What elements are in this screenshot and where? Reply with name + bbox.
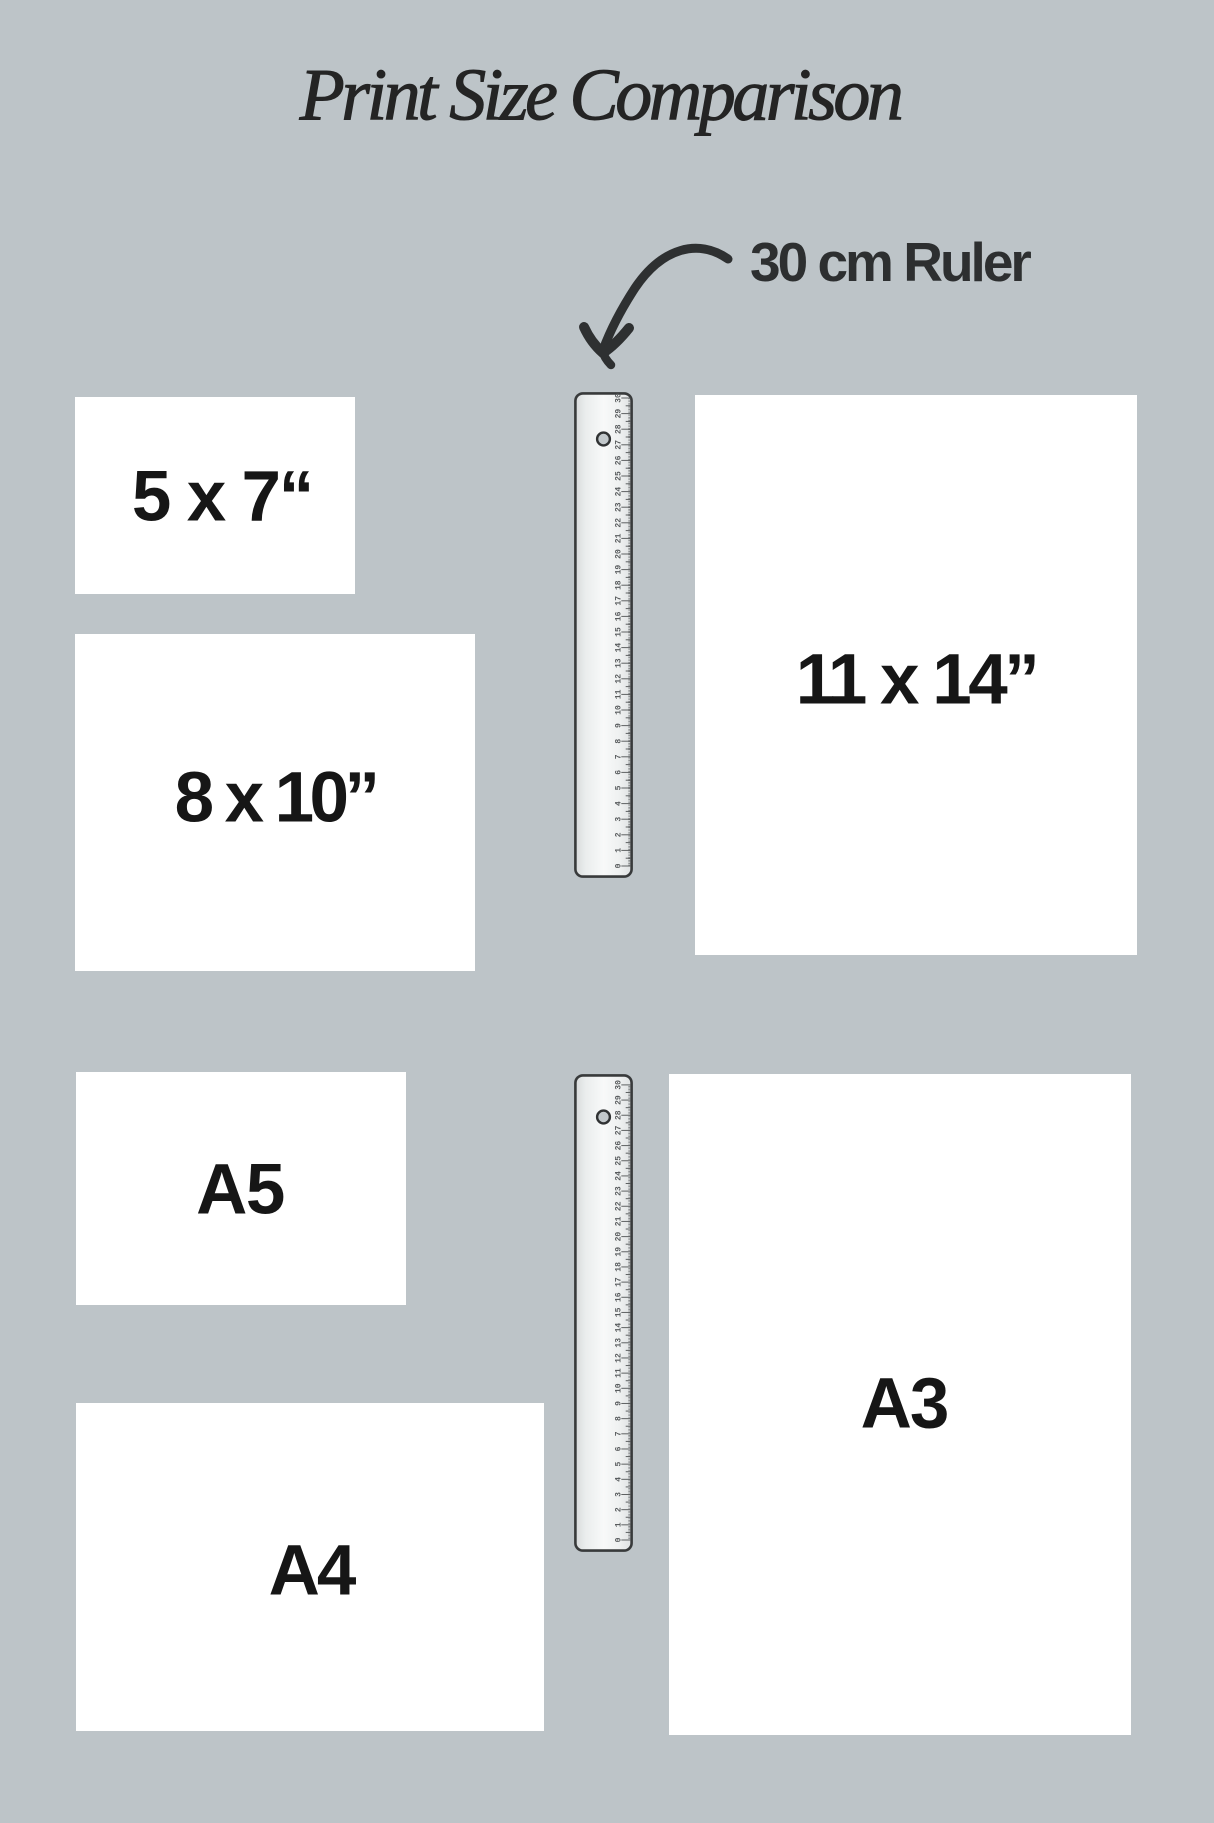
svg-text:20: 20 — [615, 549, 624, 559]
svg-text:10: 10 — [615, 1383, 624, 1393]
svg-text:17: 17 — [615, 1277, 624, 1287]
svg-text:11: 11 — [615, 689, 624, 699]
svg-text:21: 21 — [615, 1216, 624, 1226]
svg-text:27: 27 — [615, 440, 624, 450]
svg-text:25: 25 — [615, 471, 624, 481]
svg-text:0: 0 — [615, 1537, 624, 1542]
svg-text:30: 30 — [615, 1080, 624, 1090]
svg-text:23: 23 — [615, 502, 624, 512]
svg-text:8: 8 — [615, 1416, 624, 1421]
svg-text:11: 11 — [615, 1368, 624, 1378]
svg-text:30: 30 — [615, 393, 624, 403]
svg-text:26: 26 — [615, 1141, 624, 1151]
svg-text:25: 25 — [615, 1156, 624, 1166]
svg-text:24: 24 — [615, 1171, 624, 1181]
svg-text:28: 28 — [615, 1110, 624, 1120]
svg-text:1: 1 — [615, 1522, 624, 1527]
svg-text:21: 21 — [615, 533, 624, 543]
svg-text:12: 12 — [615, 1353, 624, 1363]
svg-text:18: 18 — [615, 1262, 624, 1272]
svg-text:15: 15 — [615, 627, 624, 637]
svg-text:6: 6 — [615, 1446, 624, 1451]
svg-text:14: 14 — [615, 1323, 624, 1333]
svg-text:13: 13 — [615, 658, 624, 668]
svg-text:20: 20 — [615, 1232, 624, 1242]
svg-text:19: 19 — [615, 565, 624, 575]
svg-text:22: 22 — [615, 1201, 624, 1211]
svg-text:26: 26 — [615, 455, 624, 465]
svg-text:22: 22 — [615, 518, 624, 528]
svg-text:4: 4 — [615, 801, 624, 806]
svg-text:10: 10 — [615, 705, 624, 715]
svg-text:16: 16 — [615, 1292, 624, 1302]
svg-text:18: 18 — [615, 580, 624, 590]
svg-text:3: 3 — [615, 1492, 624, 1497]
svg-text:5: 5 — [615, 1462, 624, 1467]
svg-text:29: 29 — [615, 1095, 624, 1105]
svg-text:27: 27 — [615, 1125, 624, 1135]
svg-text:13: 13 — [615, 1338, 624, 1348]
svg-text:6: 6 — [615, 770, 624, 775]
svg-text:7: 7 — [615, 1431, 624, 1436]
svg-text:14: 14 — [615, 643, 624, 653]
svg-text:23: 23 — [615, 1186, 624, 1196]
svg-text:17: 17 — [615, 596, 624, 606]
svg-text:9: 9 — [615, 1401, 624, 1406]
svg-text:9: 9 — [615, 723, 624, 728]
svg-text:7: 7 — [615, 754, 624, 759]
svg-text:16: 16 — [615, 611, 624, 621]
svg-text:15: 15 — [615, 1307, 624, 1317]
svg-text:2: 2 — [615, 1507, 624, 1512]
svg-text:4: 4 — [615, 1477, 624, 1482]
svg-text:12: 12 — [615, 674, 624, 684]
svg-text:0: 0 — [615, 863, 624, 868]
svg-text:1: 1 — [615, 848, 624, 853]
svg-text:24: 24 — [615, 487, 624, 497]
svg-text:28: 28 — [615, 424, 624, 434]
svg-text:19: 19 — [615, 1247, 624, 1257]
svg-text:5: 5 — [615, 785, 624, 790]
svg-text:8: 8 — [615, 739, 624, 744]
svg-text:29: 29 — [615, 409, 624, 419]
svg-text:2: 2 — [615, 832, 624, 837]
svg-text:3: 3 — [615, 817, 624, 822]
